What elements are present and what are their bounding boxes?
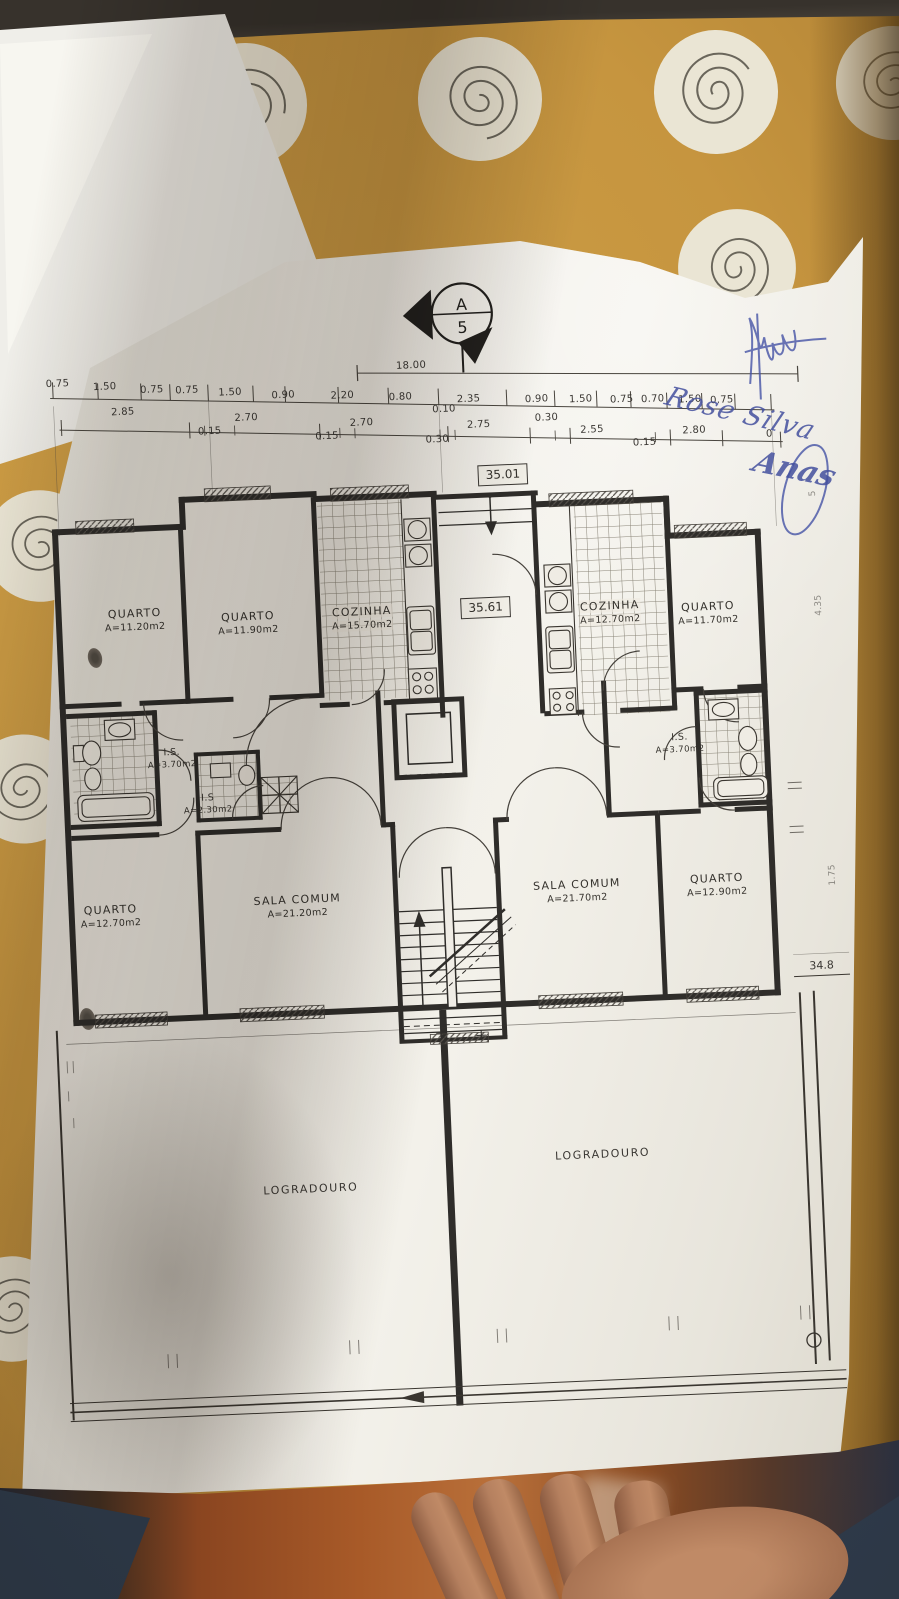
photo-of-floor-plan: A 5 35.01 35.61 34.8 0.751.500.750.751.5… xyxy=(0,0,899,1599)
hand xyxy=(0,0,899,1599)
